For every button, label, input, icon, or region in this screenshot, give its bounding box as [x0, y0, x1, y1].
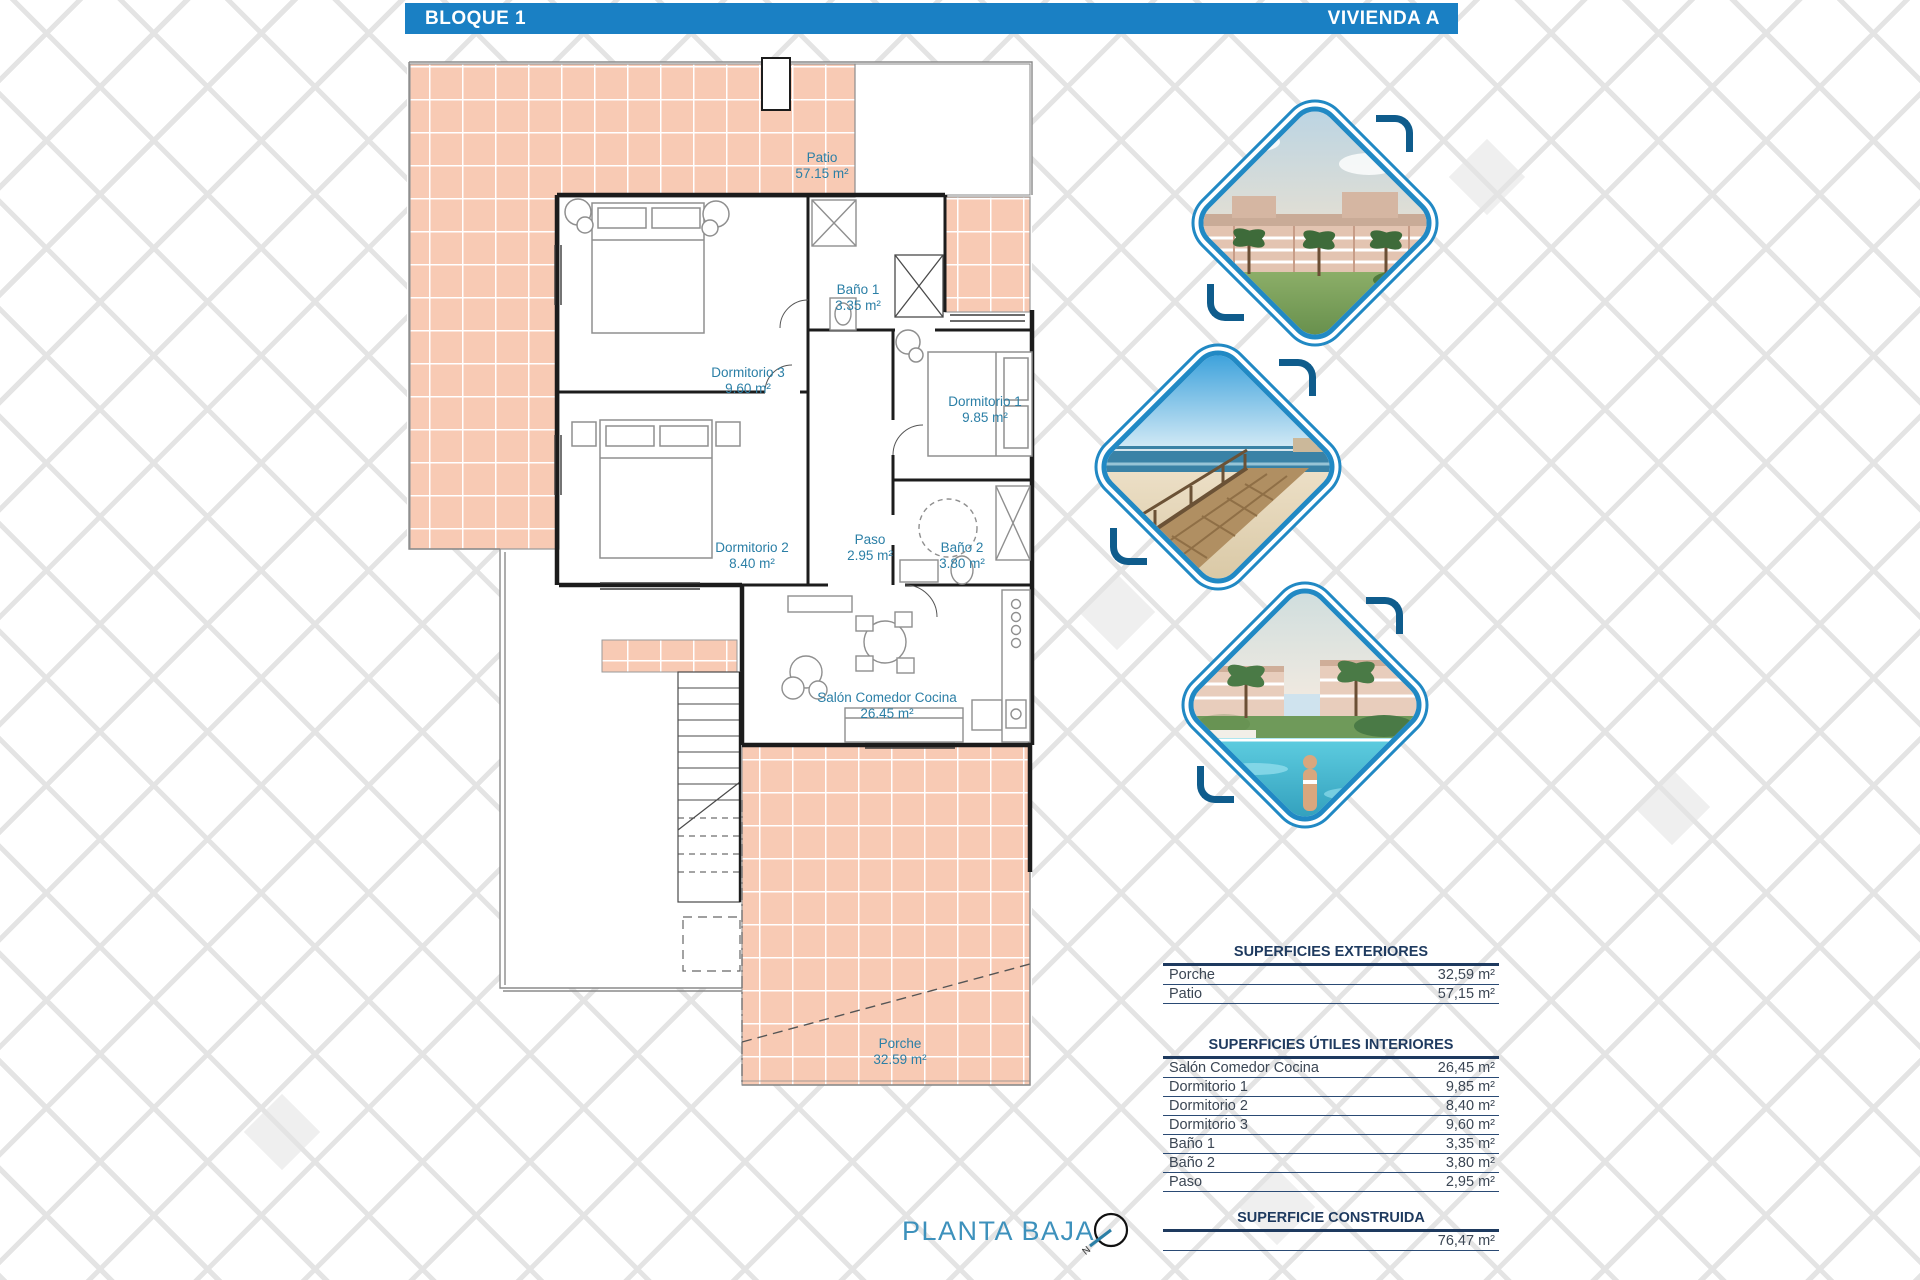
frame-corner-accent: [1366, 597, 1403, 634]
table-row-value: 26,45 m²: [1438, 1061, 1495, 1076]
frame-corner-accent: [1110, 528, 1147, 565]
room-label: Dormitorio 1: [948, 394, 1022, 409]
page: BLOQUE 1 VIVIENDA A: [0, 0, 1920, 1280]
photo-frame-3: [1215, 615, 1385, 785]
staircase: [678, 672, 740, 902]
table-row-value: 8,40 m²: [1446, 1099, 1495, 1114]
table-row-value: 57,15 m²: [1438, 987, 1495, 1002]
table-row-label: Baño 1: [1169, 1137, 1215, 1152]
kitchen-counter: [1002, 590, 1030, 742]
room-area: 32.59 m²: [873, 1052, 927, 1067]
stair-landing-tiles: [602, 640, 737, 672]
room-label: Porche: [879, 1036, 922, 1051]
room-area: 57.15 m²: [795, 166, 849, 181]
side-terrace-area: [945, 197, 1030, 312]
room-label: Paso: [855, 532, 886, 547]
table-row-value: 3,80 m²: [1446, 1156, 1495, 1171]
frame-corner-accent: [1279, 359, 1316, 396]
photo-frame-1: [1225, 133, 1395, 303]
table-interiores: SUPERFICIES ÚTILES INTERIORES Salón Come…: [1163, 1037, 1499, 1192]
frame-corner-accent: [1376, 115, 1413, 152]
table-row: 76,47 m²: [1163, 1232, 1499, 1251]
room-label: Salón Comedor Cocina: [817, 690, 957, 705]
north-compass: N: [1078, 1204, 1138, 1264]
table-row-label: Baño 2: [1169, 1156, 1215, 1171]
room-area: 9.85 m²: [962, 410, 1008, 425]
frame-corner-accent: [1197, 766, 1234, 803]
table-exteriores: SUPERFICIES EXTERIORES Porche 32,59 m² P…: [1163, 944, 1499, 1004]
room-area: 3.80 m²: [939, 556, 985, 571]
block-title: BLOQUE 1: [425, 8, 526, 30]
room-label: Baño 2: [941, 540, 984, 555]
table-row: Paso 2,95 m²: [1163, 1173, 1499, 1192]
table-row-label: Dormitorio 2: [1169, 1099, 1248, 1114]
frame-corner-accent: [1207, 284, 1244, 321]
room-label: Dormitorio 3: [711, 365, 785, 380]
table-row-label: Patio: [1169, 987, 1202, 1002]
room-area: 8.40 m²: [729, 556, 775, 571]
table-row: Salón Comedor Cocina 26,45 m²: [1163, 1059, 1499, 1078]
table-row-value: 2,95 m²: [1446, 1175, 1495, 1190]
table-title: SUPERFICIES ÚTILES INTERIORES: [1163, 1037, 1499, 1059]
table-row: Dormitorio 2 8,40 m²: [1163, 1097, 1499, 1116]
floor-title: PLANTA BAJA: [902, 1216, 1095, 1247]
photo-frame-2: [1128, 377, 1298, 547]
table-row-label: Dormitorio 3: [1169, 1118, 1248, 1133]
table-row-label: Salón Comedor Cocina: [1169, 1061, 1319, 1076]
room-label: Dormitorio 2: [715, 540, 789, 555]
table-row-value: 32,59 m²: [1438, 968, 1495, 983]
table-row: Patio 57,15 m²: [1163, 985, 1499, 1004]
floor-plan: Patio 57.15 m² Baño 1 3.35 m² Dormitorio…: [400, 40, 1050, 1100]
table-title: SUPERFICIE CONSTRUIDA: [1163, 1210, 1499, 1232]
table-row-label: Dormitorio 1: [1169, 1080, 1248, 1095]
room-area: 9.60 m²: [725, 381, 771, 396]
table-row-value: 3,35 m²: [1446, 1137, 1495, 1152]
wardrobe-hatch: [895, 255, 943, 317]
table-row-label: Porche: [1169, 968, 1215, 983]
room-area: 26.45 m²: [860, 706, 914, 721]
table-row: Dormitorio 1 9,85 m²: [1163, 1078, 1499, 1097]
table-row-value: 76,47 m²: [1438, 1234, 1495, 1249]
header-bar: BLOQUE 1 VIVIENDA A: [405, 3, 1458, 34]
room-label: Baño 1: [837, 282, 880, 297]
vent-shaft: [762, 58, 790, 110]
table-row: Dormitorio 3 9,60 m²: [1163, 1116, 1499, 1135]
table-title: SUPERFICIES EXTERIORES: [1163, 944, 1499, 966]
room-area: 3.35 m²: [835, 298, 881, 313]
dwelling-title: VIVIENDA A: [1328, 8, 1440, 30]
table-row: Porche 32,59 m²: [1163, 966, 1499, 985]
table-row: Baño 2 3,80 m²: [1163, 1154, 1499, 1173]
table-row: Baño 1 3,35 m²: [1163, 1135, 1499, 1154]
porche-area: [742, 745, 1030, 1085]
table-row-value: 9,60 m²: [1446, 1118, 1495, 1133]
table-row-value: 9,85 m²: [1446, 1080, 1495, 1095]
room-area: 2.95 m²: [847, 548, 893, 563]
room-label: Patio: [807, 150, 838, 165]
surface-tables: SUPERFICIES EXTERIORES Porche 32,59 m² P…: [1163, 944, 1499, 1251]
table-construida: SUPERFICIE CONSTRUIDA 76,47 m²: [1163, 1210, 1499, 1251]
table-row-label: Paso: [1169, 1175, 1202, 1190]
